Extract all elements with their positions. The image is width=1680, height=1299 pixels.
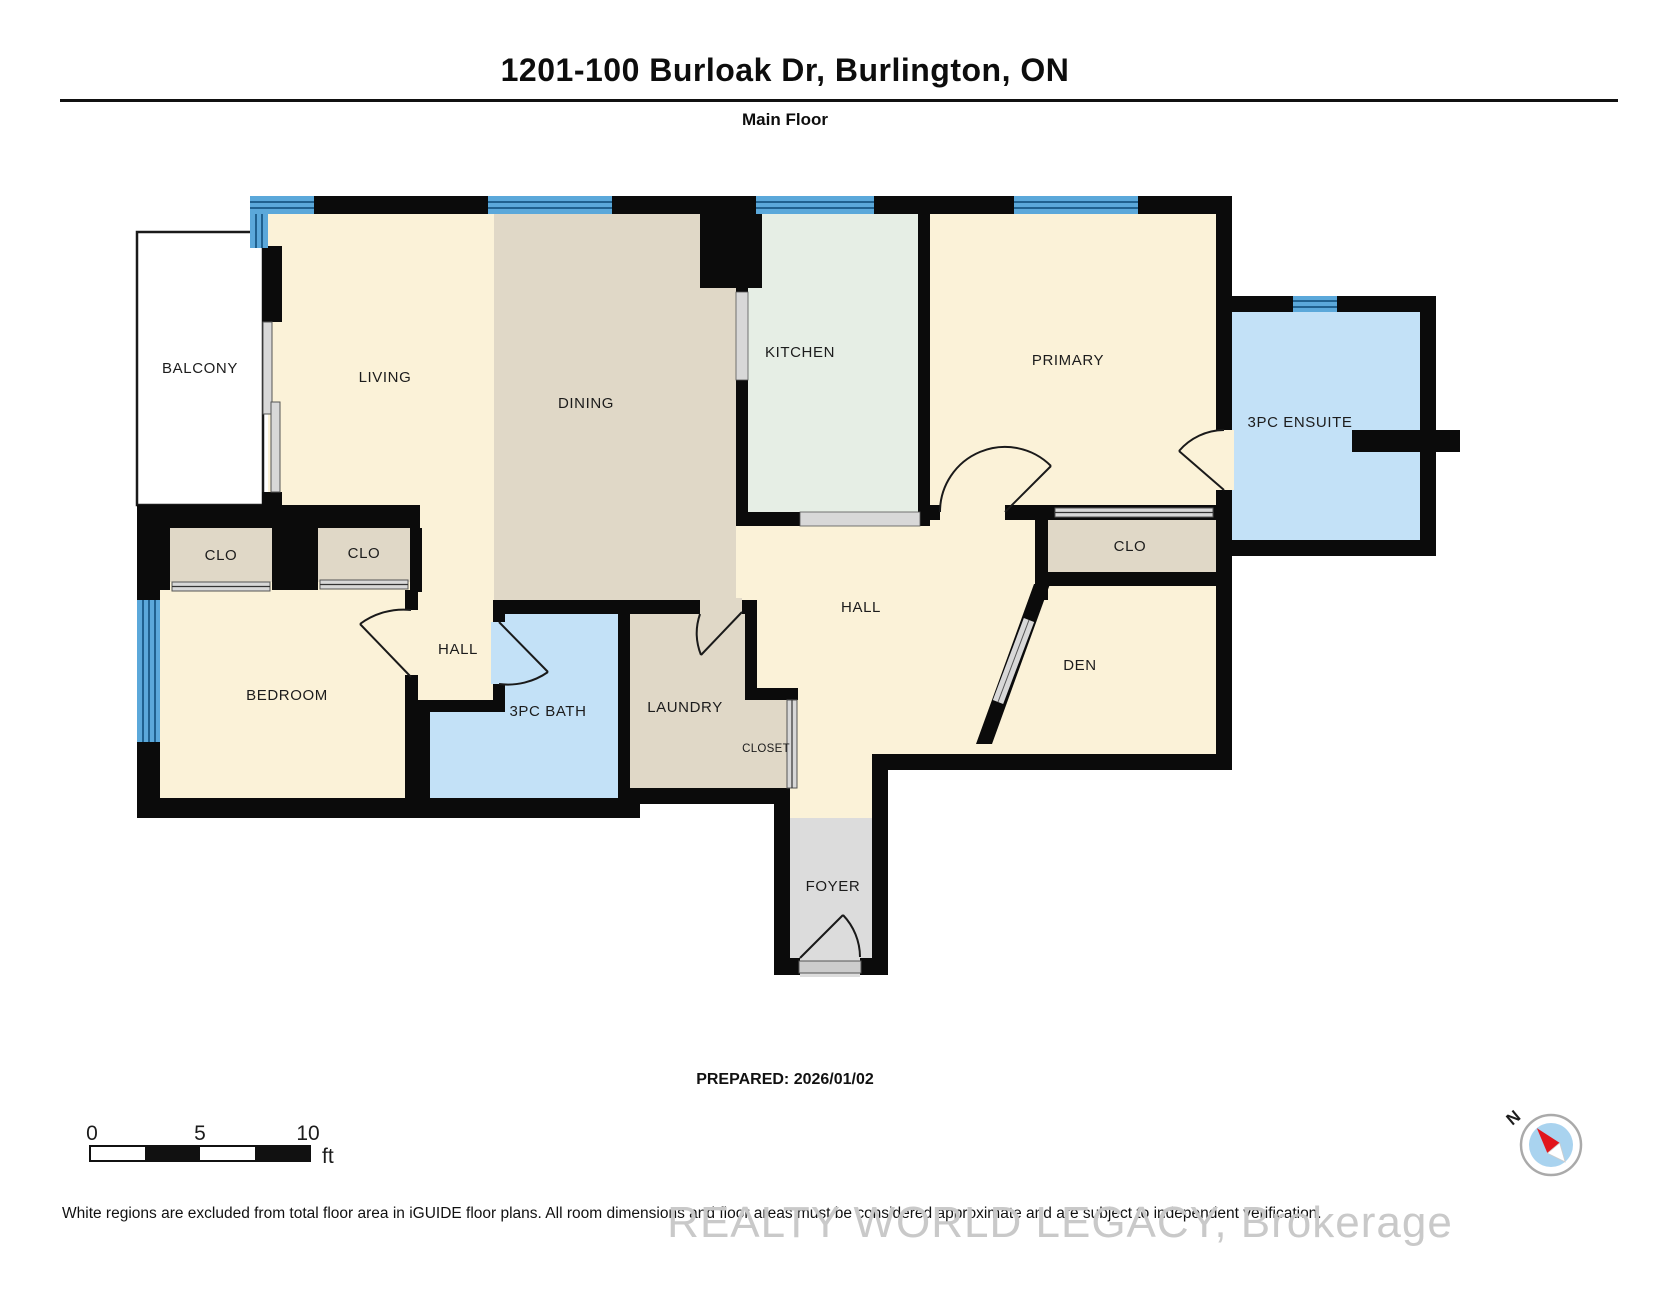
label-ensuite: 3PC ENSUITE: [1248, 414, 1353, 431]
label-bath: 3PC BATH: [509, 703, 586, 720]
scale-tick-0: 0: [86, 1122, 98, 1145]
ensuite-window: [1293, 296, 1337, 312]
clo-slider: [1055, 508, 1213, 517]
window: [250, 196, 314, 214]
label-den: DEN: [1063, 657, 1096, 674]
scale-unit: ft: [322, 1145, 334, 1168]
wall: [618, 600, 700, 614]
wall: [918, 214, 930, 512]
label-primary: PRIMARY: [1032, 352, 1104, 369]
corner-window: [250, 214, 268, 248]
wall: [872, 754, 888, 975]
wall: [700, 196, 762, 288]
label-clo-left: CLO: [205, 547, 238, 564]
wall: [160, 528, 170, 590]
window: [756, 196, 874, 214]
wall: [137, 505, 420, 528]
wall: [493, 614, 505, 622]
scale-tick-5: 5: [194, 1122, 206, 1145]
wall: [418, 700, 505, 712]
scale-bar-segment: [145, 1146, 200, 1161]
wall: [493, 600, 630, 614]
brokerage-watermark: REALTY WORLD LEGACY, Brokerage: [580, 1198, 1540, 1248]
scale-bar-segment: [255, 1146, 310, 1161]
scale-tick-10: 10: [296, 1122, 319, 1145]
bedroom-window: [137, 600, 160, 742]
wall: [618, 788, 790, 804]
room-kitchen: [748, 214, 918, 512]
balcony-slider-panel: [263, 322, 272, 414]
label-hall-upper: HALL: [438, 641, 478, 658]
label-balcony: BALCONY: [162, 360, 238, 377]
compass-north-label: N: [1503, 1107, 1525, 1129]
wall: [1230, 540, 1436, 556]
wall: [262, 492, 282, 505]
wall: [618, 614, 630, 788]
wall: [774, 788, 790, 975]
wall: [262, 246, 282, 322]
label-closet: CLOSET: [742, 743, 790, 755]
scale-bar: 0 5 10 ft: [86, 1122, 334, 1168]
label-dining: DINING: [558, 395, 614, 412]
wall: [405, 675, 418, 798]
label-laundry: LAUNDRY: [647, 699, 723, 716]
wall-stub: [1352, 430, 1460, 452]
wall: [137, 798, 640, 818]
room-dining: [494, 214, 736, 600]
wall: [872, 754, 1232, 770]
wall: [418, 700, 430, 798]
wall: [272, 528, 318, 590]
label-clo-mid: CLO: [348, 545, 381, 562]
wall: [1035, 572, 1232, 586]
label-bedroom: BEDROOM: [246, 687, 328, 704]
clo-slider: [172, 582, 270, 591]
wall: [745, 688, 798, 700]
wall: [1420, 296, 1436, 556]
wall: [745, 600, 757, 700]
window: [488, 196, 612, 214]
wall: [410, 528, 422, 592]
label-foyer: FOYER: [806, 878, 861, 895]
label-kitchen: KITCHEN: [765, 344, 835, 361]
label-hall-main: HALL: [841, 599, 881, 616]
prepared-date: PREPARED: 2026/01/02: [0, 1071, 1570, 1089]
clo-slider: [320, 580, 408, 589]
floor-plan: BALCONY LIVING DINING KITCHEN PRIMARY 3P…: [0, 0, 1680, 1299]
window: [1014, 196, 1138, 214]
label-living: LIVING: [359, 369, 412, 386]
wall: [1216, 214, 1232, 770]
wall: [930, 505, 940, 520]
kitchen-pass-opening: [736, 292, 748, 380]
label-clo-right: CLO: [1114, 538, 1147, 555]
compass: N: [1503, 1107, 1581, 1175]
kitchen-cased-opening: [800, 512, 920, 526]
balcony-slider-panel: [271, 402, 280, 492]
wall: [405, 590, 418, 610]
